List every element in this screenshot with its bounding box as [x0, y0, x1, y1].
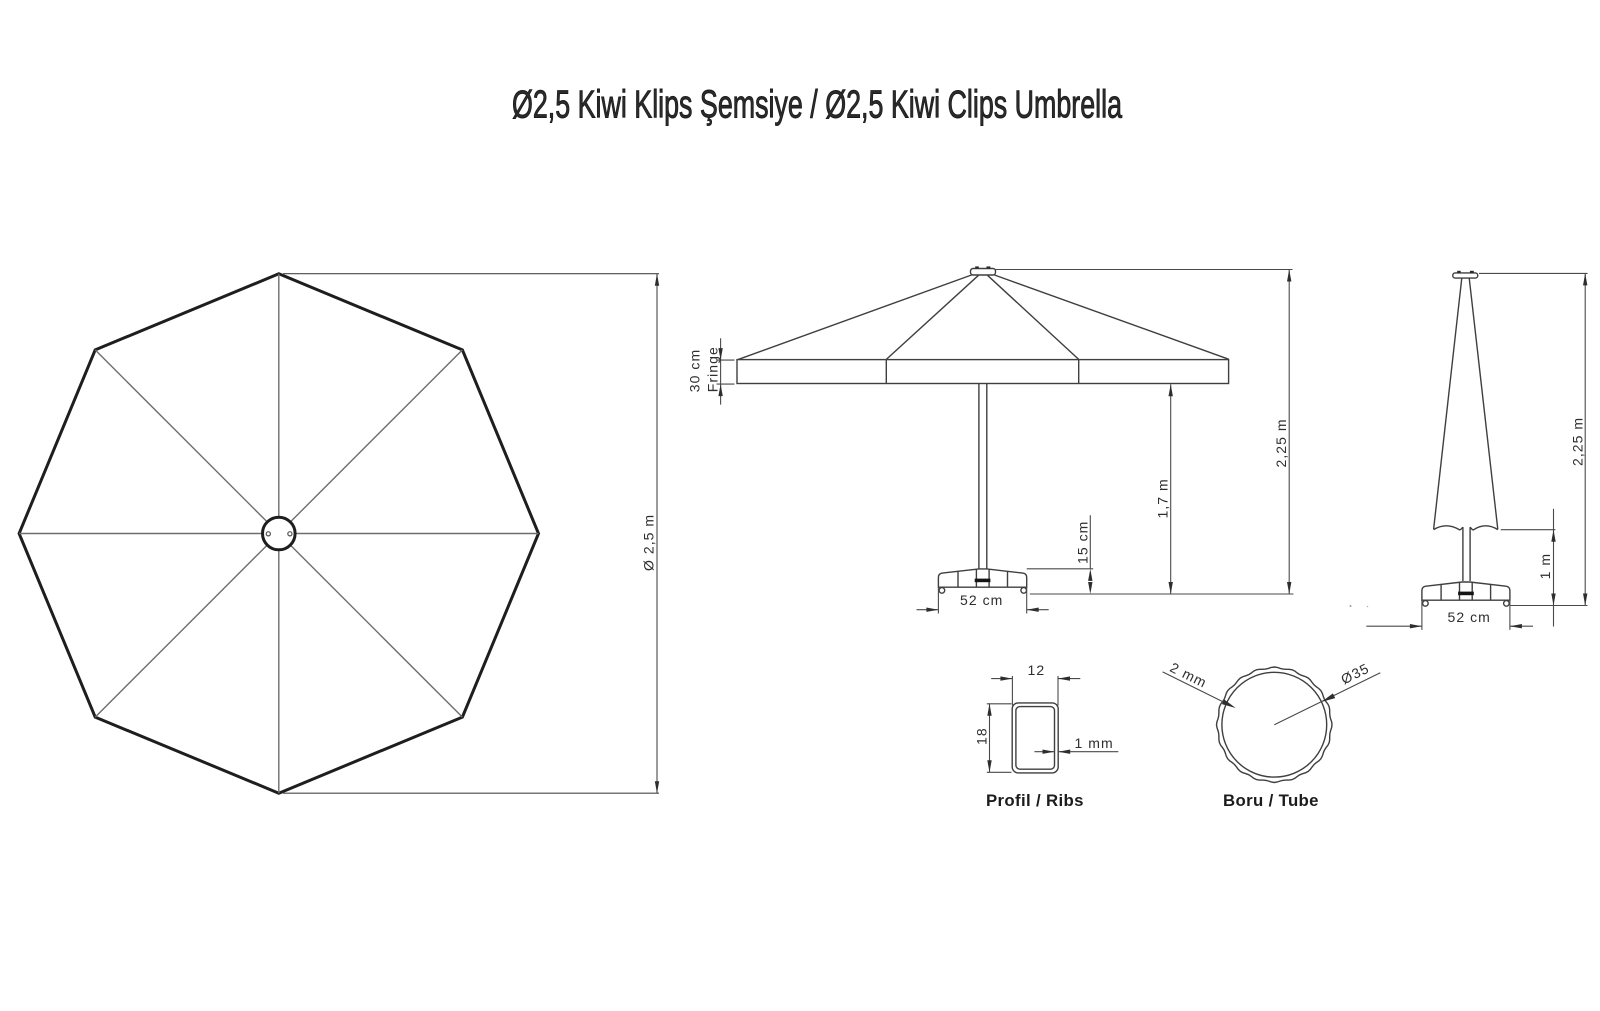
svg-text:18: 18	[974, 727, 990, 745]
svg-text:15 cm: 15 cm	[1075, 521, 1091, 564]
svg-text:2,25 m: 2,25 m	[1570, 417, 1586, 466]
svg-text:1,7 m: 1,7 m	[1155, 478, 1171, 518]
svg-text:2,25 m: 2,25 m	[1273, 418, 1289, 467]
svg-text:52 cm: 52 cm	[960, 592, 1003, 608]
svg-text:Ø2,5 Kiwi Klips Şemsiye / Ø2,5: Ø2,5 Kiwi Klips Şemsiye / Ø2,5 Kiwi Clip…	[512, 84, 1122, 127]
svg-text:12: 12	[1028, 662, 1046, 678]
svg-text:Boru / Tube: Boru / Tube	[1223, 791, 1319, 810]
svg-text:1 m: 1 m	[1537, 553, 1553, 580]
svg-text:Ø 2,5 m: Ø 2,5 m	[641, 514, 657, 571]
svg-text:30 cm: 30 cm	[687, 349, 703, 392]
svg-text:Fringe: Fringe	[705, 346, 721, 392]
svg-text:Profil / Ribs: Profil / Ribs	[986, 791, 1084, 810]
svg-text:1 mm: 1 mm	[1075, 735, 1114, 751]
svg-text:52 cm: 52 cm	[1448, 609, 1491, 625]
